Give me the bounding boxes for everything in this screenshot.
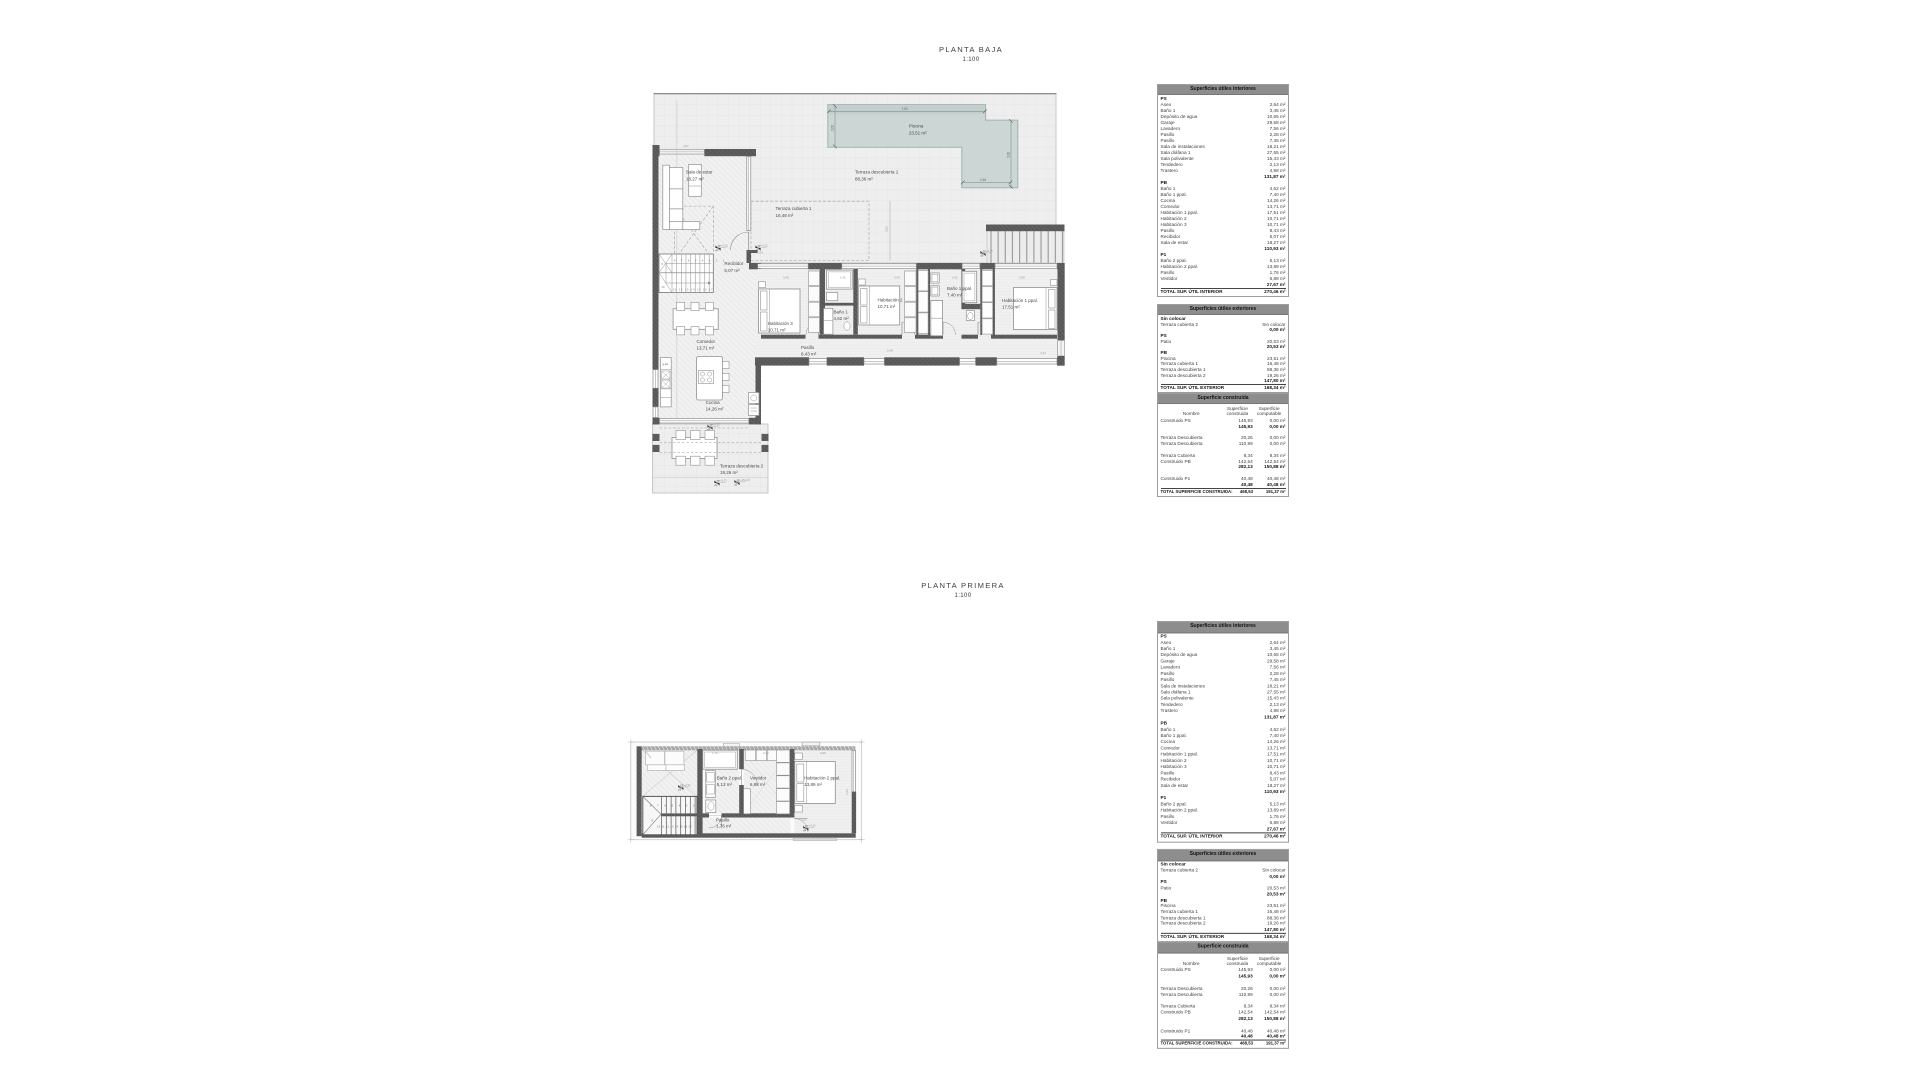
svg-text:3,04: 3,04 <box>757 251 763 255</box>
svg-text:13,89 m²: 13,89 m² <box>804 782 822 787</box>
svg-text:2,42: 2,42 <box>952 276 958 280</box>
svg-text:Terraza cubierta 1: Terraza cubierta 1 <box>776 206 813 211</box>
svg-text:4,07: 4,07 <box>683 144 689 148</box>
svg-text:2,32: 2,32 <box>763 751 769 755</box>
svg-text:7,60: 7,60 <box>902 107 908 111</box>
svg-text:Vestidor: Vestidor <box>750 775 767 780</box>
svg-text:+0,13: +0,13 <box>720 478 727 482</box>
svg-text:88,36 m²: 88,36 m² <box>855 177 873 182</box>
svg-text:Terraza descubierta 2: Terraza descubierta 2 <box>720 463 764 468</box>
svg-text:19,26 m²: 19,26 m² <box>720 470 738 475</box>
svg-text:x+≡: x+≡ <box>663 363 669 367</box>
svg-text:+154,45: +154,45 <box>740 478 750 482</box>
svg-text:8 7 6 5 4 3 2 1: 8 7 6 5 4 3 2 1 <box>650 804 704 808</box>
svg-text:1,76 m²: 1,76 m² <box>716 824 732 829</box>
svg-text:Habitación 2: Habitación 2 <box>878 298 904 303</box>
svg-text:Pasillo: Pasillo <box>801 345 815 350</box>
svg-text:17,51 m²: 17,51 m² <box>1002 305 1020 310</box>
svg-text:5,07 m²: 5,07 m² <box>724 268 740 273</box>
svg-text:Baño 2 ppal.: Baño 2 ppal. <box>717 775 742 780</box>
svg-text:3,30: 3,30 <box>1007 152 1011 158</box>
svg-text:3,00: 3,00 <box>885 226 889 232</box>
svg-text:4,13: 4,13 <box>1040 351 1046 355</box>
svg-text:Habitación 2 ppal.: Habitación 2 ppal. <box>804 775 840 780</box>
svg-text:10 11 12 13 14 15 16 17: 10 11 12 13 14 15 16 17 <box>657 826 692 829</box>
svg-text:Sala de estar: Sala de estar <box>686 170 713 175</box>
svg-text:+0,15: +0,15 <box>986 249 993 253</box>
svg-text:3,96: 3,96 <box>820 751 826 755</box>
svg-text:14,26 m²: 14,26 m² <box>706 406 724 411</box>
svg-text:1,70: 1,70 <box>712 751 718 755</box>
svg-text:Piscina: Piscina <box>909 124 924 129</box>
svg-text:Pasillo: Pasillo <box>716 817 730 822</box>
svg-text:2,46: 2,46 <box>980 178 986 182</box>
svg-text:Baño 1 ppal.: Baño 1 ppal. <box>947 286 972 291</box>
svg-text:Habitación 3: Habitación 3 <box>768 321 794 326</box>
svg-text:Habitación 1 ppal.: Habitación 1 ppal. <box>1002 298 1038 303</box>
svg-text:10,71 m²: 10,71 m² <box>878 304 896 309</box>
svg-text:Comedor: Comedor <box>697 339 716 344</box>
svg-text:4,23: 4,23 <box>845 789 849 795</box>
svg-text:+0,15: +0,15 <box>761 243 768 247</box>
svg-text:7,40 m²: 7,40 m² <box>947 292 963 297</box>
svg-text:+3,05: +3,05 <box>809 824 816 828</box>
svg-text:10,71 m²: 10,71 m² <box>768 328 786 333</box>
svg-text:Cocina: Cocina <box>706 400 721 405</box>
svg-text:+0,15: +0,15 <box>721 243 728 247</box>
svg-text:5,49: 5,49 <box>887 349 893 353</box>
svg-text:3,43: 3,43 <box>894 276 900 280</box>
svg-text:1,42: 1,42 <box>840 276 846 280</box>
svg-text:+2,92: +2,92 <box>684 783 691 787</box>
svg-text:3,45: 3,45 <box>783 276 789 280</box>
svg-text:3,60: 3,60 <box>1019 276 1025 280</box>
svg-text:3,02: 3,02 <box>801 818 807 822</box>
svg-text:8 7 6 5 4 3 2 1: 8 7 6 5 4 3 2 1 <box>674 258 727 262</box>
svg-text:Terraza descubierta 1: Terraza descubierta 1 <box>855 170 899 175</box>
svg-text:13,71 m²: 13,71 m² <box>697 346 715 351</box>
svg-text:2,00: 2,00 <box>830 125 834 131</box>
svg-text:4,62 m²: 4,62 m² <box>834 316 850 321</box>
svg-text:8,43 m²: 8,43 m² <box>801 352 817 357</box>
svg-text:+0,13: +0,13 <box>713 423 720 427</box>
svg-text:16,48 m²: 16,48 m² <box>776 213 794 218</box>
svg-text:6,88 m²: 6,88 m² <box>750 782 766 787</box>
svg-text:11 12 13 14 15 16 17: 11 12 13 14 15 16 17 <box>673 287 713 291</box>
svg-text:23,51 m²: 23,51 m² <box>909 131 927 136</box>
svg-text:18,27 m²: 18,27 m² <box>686 177 704 182</box>
svg-text:Baño 1: Baño 1 <box>834 310 849 315</box>
svg-text:5,13 m²: 5,13 m² <box>717 782 733 787</box>
svg-text:Recibidor: Recibidor <box>724 261 744 266</box>
